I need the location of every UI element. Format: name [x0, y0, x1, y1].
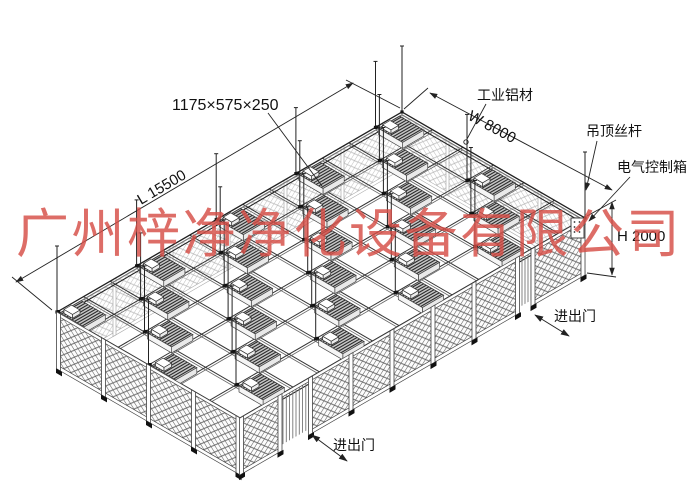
electrical-control-box: [571, 218, 584, 238]
door-right-text: 进出门: [554, 308, 596, 324]
label-control-box-leader: [589, 177, 630, 221]
label-aluminum-text: 工业铝材: [477, 87, 533, 103]
door-bottom-text: 进出门: [333, 437, 375, 453]
label-ceiling-rod-text: 吊顶丝杆: [586, 123, 642, 139]
technical-drawing-page: L 15500 W 8000 H 2000 1175×575×250 工业铝材 …: [0, 0, 700, 496]
dimension-height-text: H 2000: [617, 228, 665, 245]
cleanroom-isometric-drawing: L 15500 W 8000 H 2000 1175×575×250 工业铝材 …: [0, 0, 700, 496]
label-ceiling-rod-leader: [586, 141, 597, 190]
dimension-height: [587, 200, 616, 277]
dimension-length-text: L 15500: [134, 167, 189, 209]
ffu-size-text: 1175×575×250: [172, 97, 279, 114]
label-control-box-text: 电气控制箱: [617, 159, 687, 175]
